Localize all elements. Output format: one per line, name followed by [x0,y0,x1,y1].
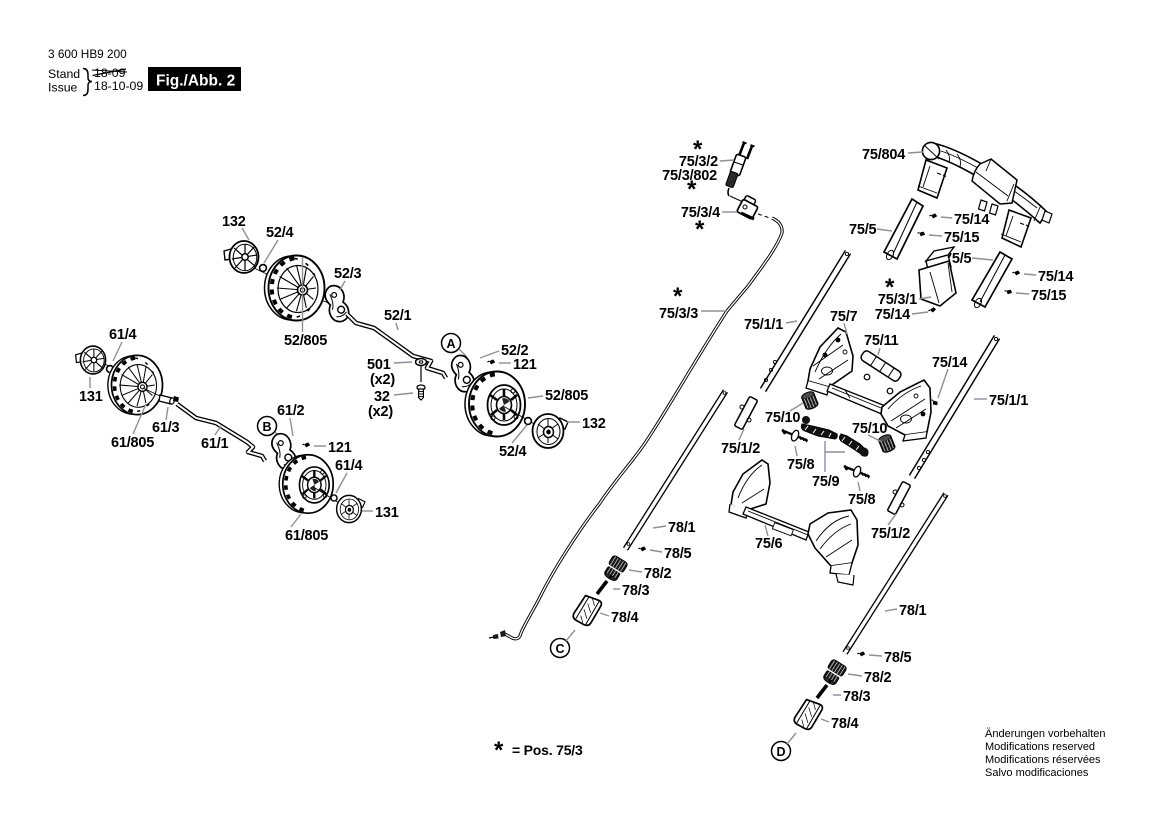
svg-text:75/1/1: 75/1/1 [989,393,1028,409]
svg-text:75/10: 75/10 [765,410,800,426]
svg-text:78/1: 78/1 [668,520,696,536]
svg-text:*: * [695,216,705,243]
svg-text:501: 501 [367,357,391,373]
svg-text:61/805: 61/805 [285,528,328,544]
svg-text:78/5: 78/5 [884,650,912,666]
svg-text:75/10: 75/10 [852,421,887,437]
svg-text:*: * [494,737,504,764]
svg-text:Änderungen vorbehalten: Änderungen vorbehalten [985,728,1105,740]
svg-text:61/805: 61/805 [111,435,154,451]
svg-text:Fig./Abb. 2: Fig./Abb. 2 [156,73,235,90]
svg-text:75/7: 75/7 [830,309,858,325]
svg-text:121: 121 [513,357,537,373]
svg-text:= Pos. 75/3: = Pos. 75/3 [512,742,583,758]
svg-text:Stand: Stand [48,67,80,81]
svg-text:61/3: 61/3 [152,420,180,436]
svg-text:78/2: 78/2 [644,566,672,582]
svg-text:52/3: 52/3 [334,266,362,282]
svg-text:52/4: 52/4 [499,444,527,460]
svg-text:Modifications réservées: Modifications réservées [985,754,1101,766]
svg-text:78/4: 78/4 [831,716,859,732]
svg-text:75/14: 75/14 [875,307,910,323]
svg-text:75/1/1: 75/1/1 [744,317,783,333]
svg-text:75/3/3: 75/3/3 [659,306,698,322]
svg-text:75/5: 75/5 [849,222,877,238]
svg-text:(x2): (x2) [370,372,395,388]
svg-text:Issue: Issue [48,81,78,95]
svg-text:Salvo modificaciones: Salvo modificaciones [985,767,1089,779]
svg-text:75/15: 75/15 [944,230,979,246]
svg-text:75/11: 75/11 [864,333,899,349]
svg-text:131: 131 [79,389,103,405]
svg-text:75/8: 75/8 [787,457,815,473]
svg-text:78/3: 78/3 [622,583,650,599]
svg-text:61/1: 61/1 [201,436,229,452]
svg-text:75/8: 75/8 [848,492,876,508]
svg-text:D: D [776,745,785,759]
svg-text:61/4: 61/4 [335,458,363,474]
svg-text:61/4: 61/4 [109,327,137,343]
svg-text:78/1: 78/1 [899,603,927,619]
svg-text:A: A [446,337,455,351]
svg-text:52/805: 52/805 [545,388,588,404]
svg-text:78/2: 78/2 [864,670,892,686]
svg-text:75/3/1: 75/3/1 [878,292,917,308]
svg-text:78/5: 78/5 [664,546,692,562]
svg-text:75/14: 75/14 [954,212,989,228]
svg-text:75/1/2: 75/1/2 [871,526,910,542]
svg-text:B: B [262,420,271,434]
svg-text:75/14: 75/14 [932,355,967,371]
svg-text:75/1/2: 75/1/2 [721,441,760,457]
svg-text:3 600 HB9 200: 3 600 HB9 200 [48,47,127,61]
svg-text:*: * [687,176,697,203]
svg-text:61/2: 61/2 [277,403,305,419]
svg-text:(x2): (x2) [368,404,393,420]
svg-text:132: 132 [582,416,606,432]
svg-text:52/1: 52/1 [384,308,412,324]
svg-text:78/4: 78/4 [611,610,639,626]
svg-text:131: 131 [375,505,399,521]
svg-text:75/15: 75/15 [1031,288,1066,304]
svg-text:52/4: 52/4 [266,225,294,241]
svg-text:75/9: 75/9 [812,474,840,490]
svg-text:132: 132 [222,214,246,230]
svg-text:C: C [555,642,564,656]
svg-text:121: 121 [328,440,352,456]
svg-text:18-09: 18-09 [94,66,126,80]
svg-text:75/14: 75/14 [1038,269,1073,285]
svg-text:Modifications reserved: Modifications reserved [985,741,1095,753]
svg-text:78/3: 78/3 [843,689,871,705]
svg-text:32: 32 [374,389,390,405]
svg-text:75/804: 75/804 [862,147,905,163]
svg-text:52/805: 52/805 [284,333,327,349]
svg-text:75/6: 75/6 [755,536,783,552]
svg-text:18-10-09: 18-10-09 [94,79,143,93]
